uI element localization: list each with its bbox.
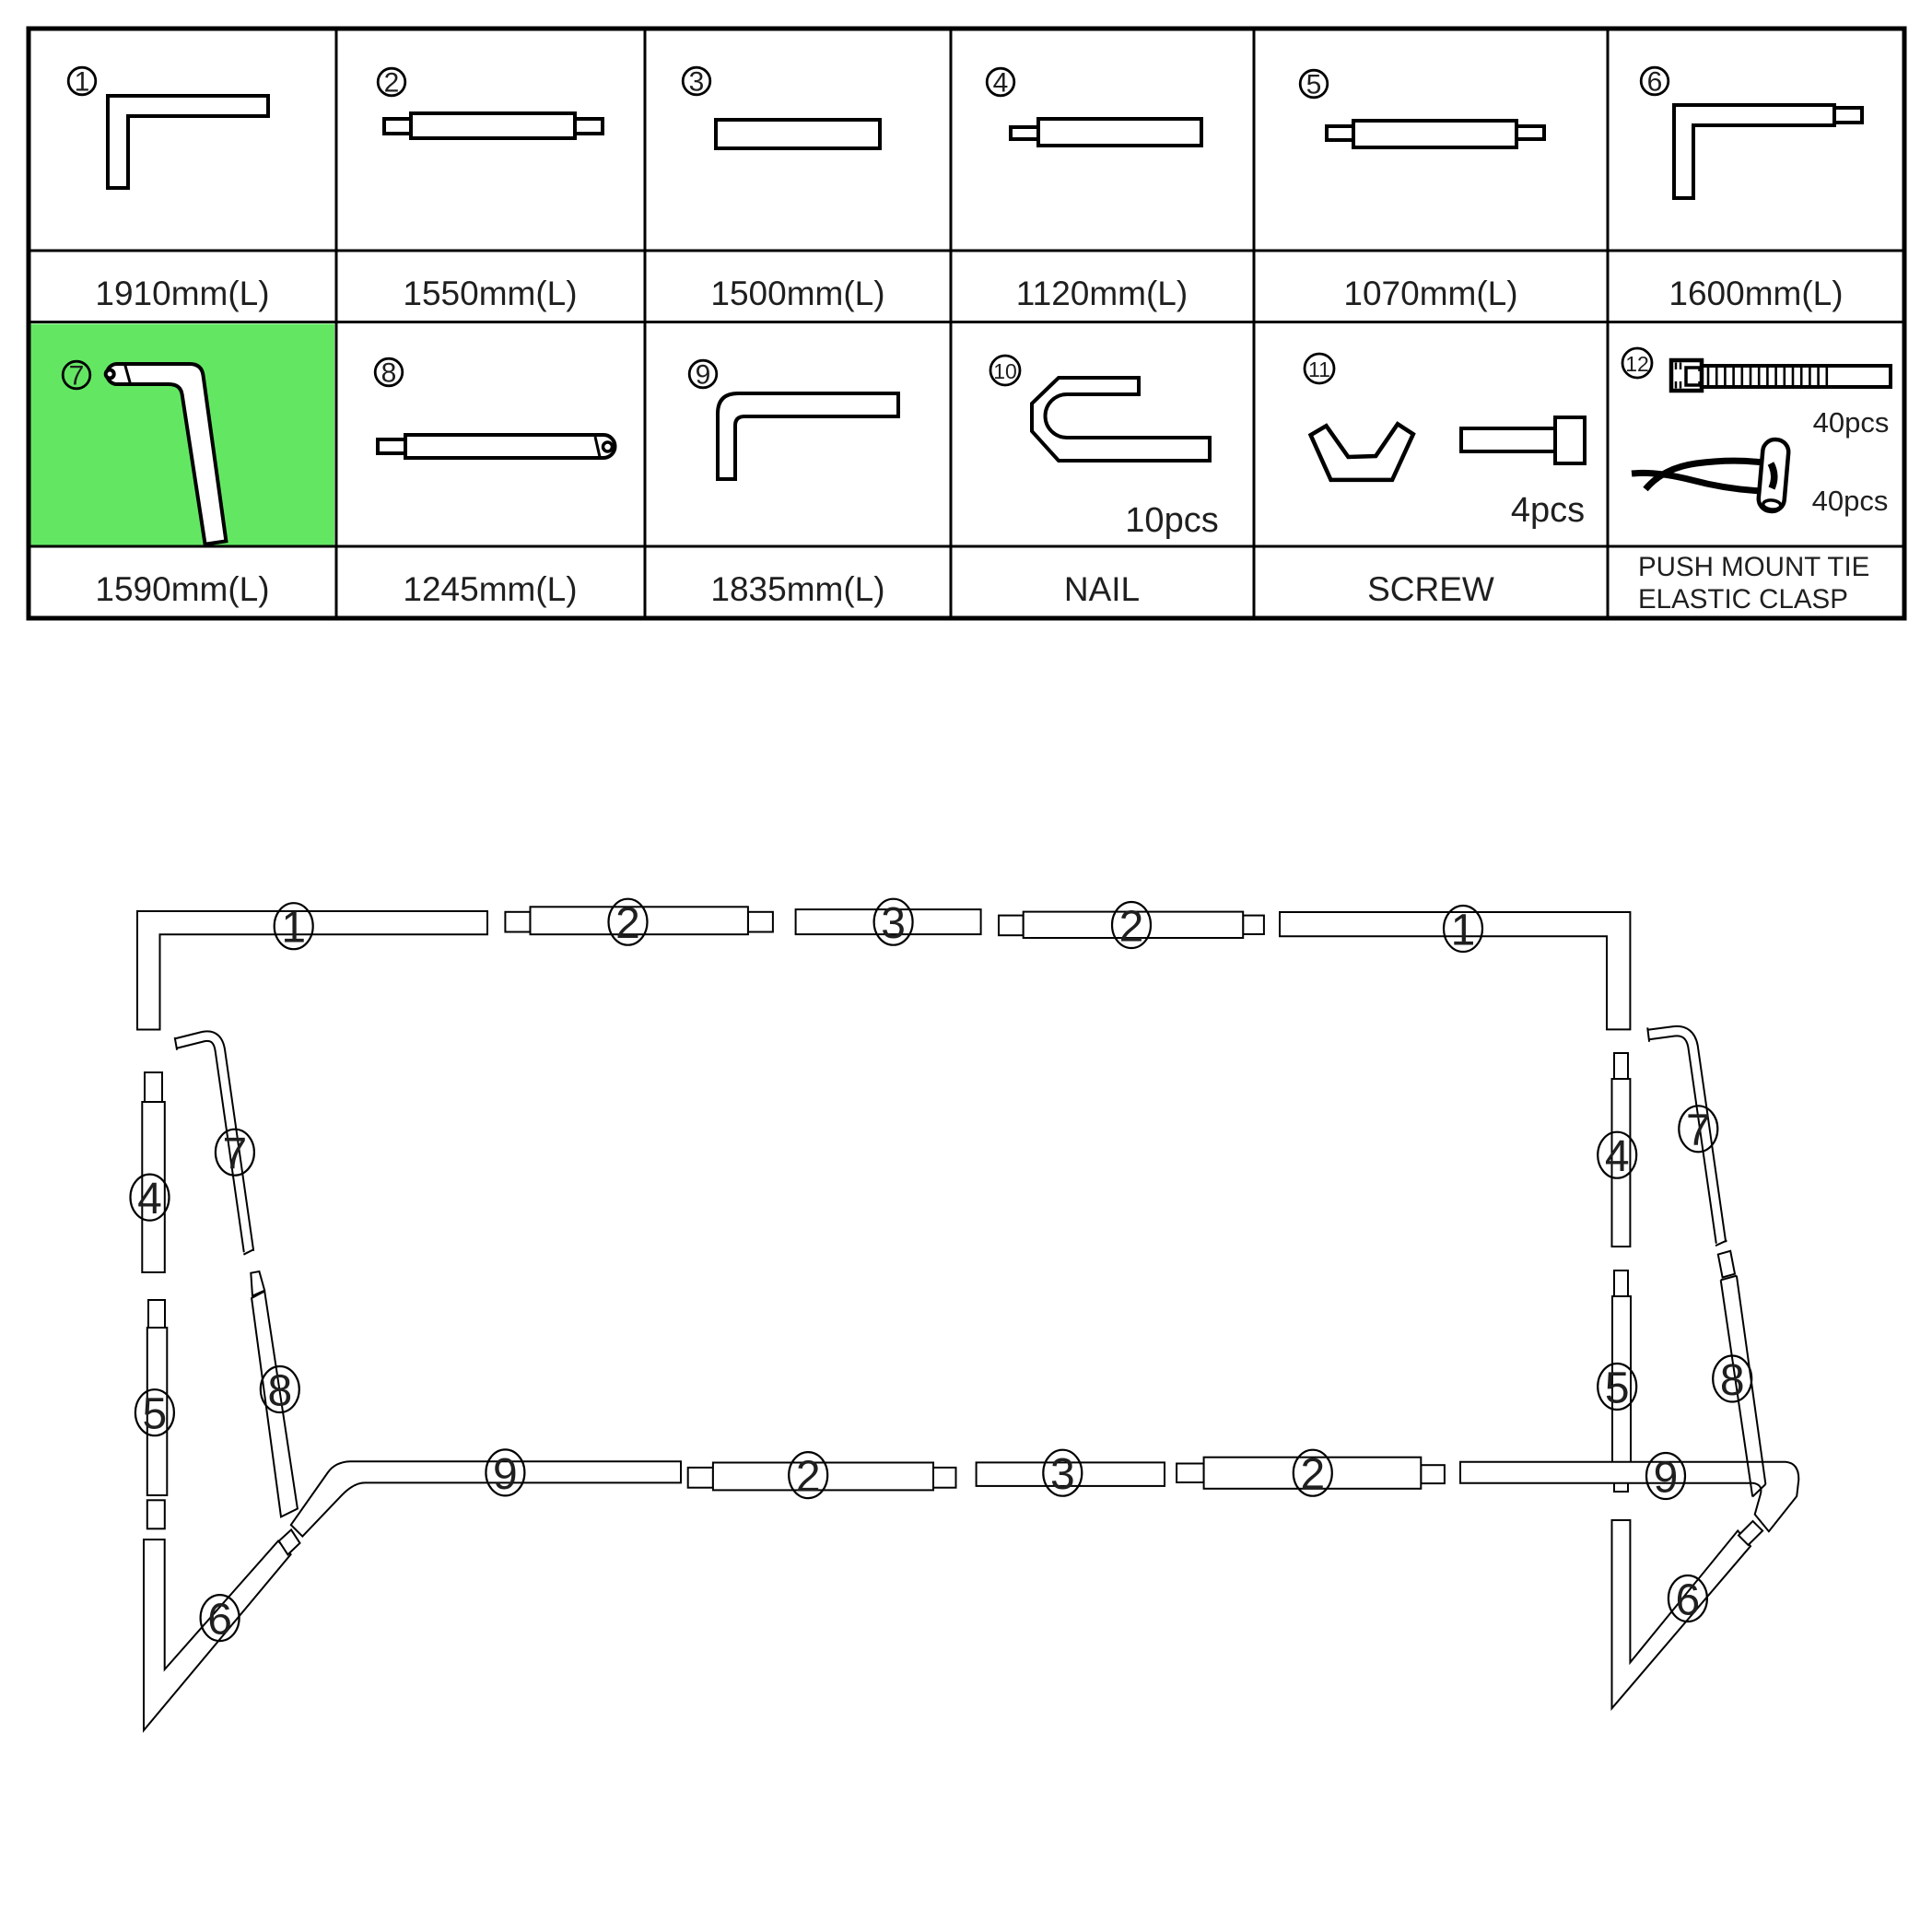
svg-text:11: 11 — [1308, 357, 1330, 381]
svg-text:1120mm(L): 1120mm(L) — [1016, 275, 1188, 312]
svg-text:1835mm(L): 1835mm(L) — [710, 570, 884, 608]
svg-text:1550mm(L): 1550mm(L) — [403, 275, 577, 312]
svg-text:8: 8 — [381, 358, 397, 389]
svg-text:1: 1 — [75, 67, 90, 98]
svg-text:5: 5 — [1605, 1364, 1630, 1412]
svg-text:9: 9 — [1654, 1453, 1679, 1502]
svg-text:7: 7 — [69, 361, 85, 392]
svg-text:1590mm(L): 1590mm(L) — [95, 570, 269, 608]
svg-text:6: 6 — [1647, 67, 1663, 98]
svg-text:ELASTIC CLASP: ELASTIC CLASP — [1638, 584, 1848, 615]
svg-text:4pcs: 4pcs — [1511, 491, 1585, 530]
svg-text:8: 8 — [267, 1366, 292, 1415]
svg-text:NAIL: NAIL — [1064, 570, 1140, 608]
svg-text:SCREW: SCREW — [1367, 570, 1494, 608]
svg-text:6: 6 — [207, 1596, 232, 1645]
svg-text:6: 6 — [1676, 1575, 1701, 1624]
svg-text:2: 2 — [1119, 902, 1144, 951]
svg-text:1910mm(L): 1910mm(L) — [95, 275, 269, 312]
svg-text:8: 8 — [1720, 1356, 1745, 1405]
svg-text:4: 4 — [993, 68, 1009, 99]
svg-text:9: 9 — [696, 360, 711, 391]
svg-text:2: 2 — [384, 68, 400, 99]
svg-text:2: 2 — [1300, 1450, 1325, 1499]
svg-text:2: 2 — [796, 1453, 821, 1502]
svg-text:1: 1 — [281, 904, 306, 953]
svg-text:3: 3 — [1050, 1450, 1075, 1499]
svg-text:7: 7 — [223, 1130, 248, 1178]
svg-text:5: 5 — [143, 1390, 168, 1439]
svg-text:7: 7 — [1686, 1107, 1711, 1155]
svg-text:10pcs: 10pcs — [1125, 501, 1218, 540]
svg-text:9: 9 — [493, 1450, 518, 1499]
svg-text:3: 3 — [881, 899, 906, 948]
svg-text:PUSH MOUNT TIE: PUSH MOUNT TIE — [1638, 552, 1869, 582]
svg-text:1600mm(L): 1600mm(L) — [1669, 275, 1843, 312]
svg-text:4: 4 — [137, 1175, 162, 1224]
svg-text:40pcs: 40pcs — [1813, 406, 1890, 439]
svg-text:1070mm(L): 1070mm(L) — [1343, 275, 1517, 312]
svg-text:40pcs: 40pcs — [1812, 485, 1889, 517]
svg-text:12: 12 — [1625, 352, 1649, 376]
svg-text:4: 4 — [1605, 1132, 1630, 1181]
svg-text:10: 10 — [993, 359, 1017, 383]
svg-text:1: 1 — [1451, 906, 1476, 954]
svg-text:1245mm(L): 1245mm(L) — [403, 570, 577, 608]
svg-text:3: 3 — [689, 67, 705, 98]
svg-text:1500mm(L): 1500mm(L) — [710, 275, 884, 312]
svg-text:2: 2 — [615, 899, 640, 948]
svg-text:5: 5 — [1306, 70, 1322, 100]
